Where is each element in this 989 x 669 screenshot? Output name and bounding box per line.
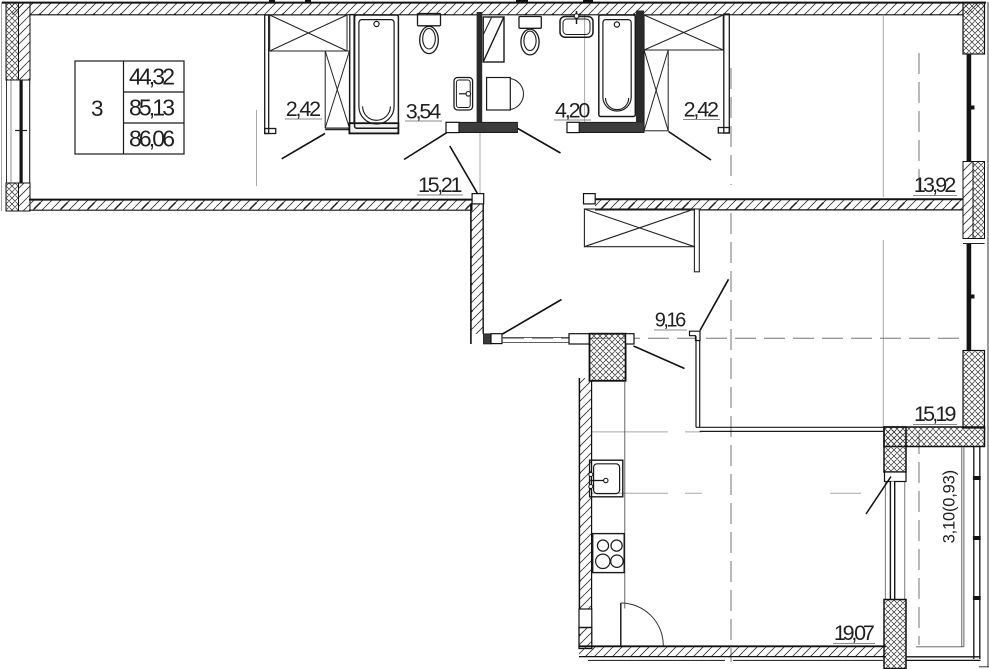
svg-text:86,06: 86,06: [129, 126, 175, 152]
svg-text:2,42: 2,42: [684, 98, 719, 122]
svg-text:15,21: 15,21: [418, 173, 463, 197]
svg-text:44,32: 44,32: [129, 64, 175, 90]
svg-text:19,07: 19,07: [834, 621, 875, 645]
svg-text:4,20: 4,20: [555, 99, 590, 123]
svg-text:15,19: 15,19: [914, 402, 957, 426]
svg-text:13,92: 13,92: [914, 173, 957, 197]
svg-text:85,13: 85,13: [129, 95, 175, 121]
svg-text:2,42: 2,42: [286, 97, 321, 121]
svg-text:3,10(0,93): 3,10(0,93): [941, 470, 959, 544]
svg-text:3,54: 3,54: [406, 100, 441, 124]
svg-text:3: 3: [91, 96, 104, 121]
svg-text:9,16: 9,16: [655, 310, 687, 332]
